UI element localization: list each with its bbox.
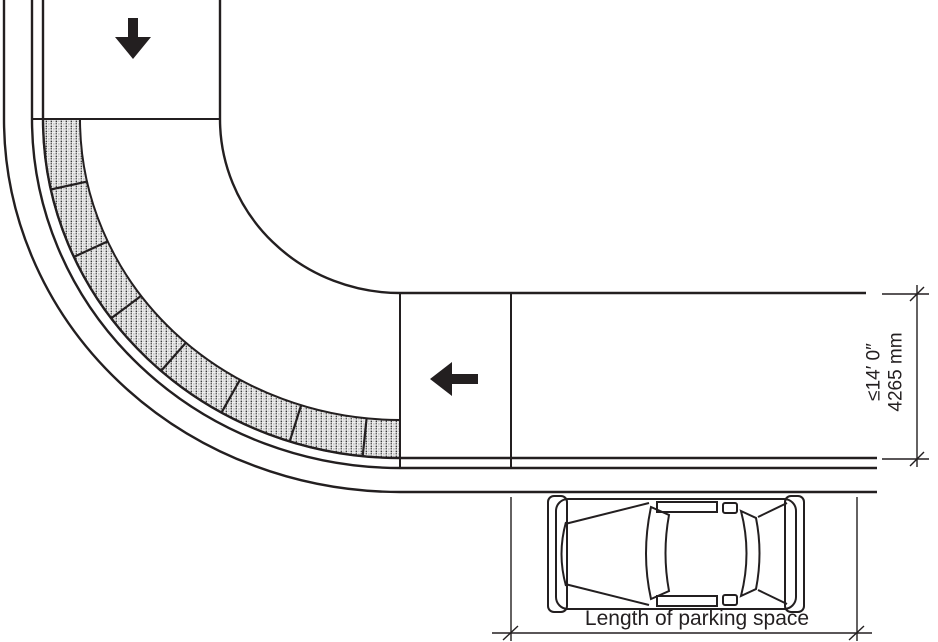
car-rear-bumper	[785, 496, 804, 612]
curb-line-outer	[32, 0, 877, 468]
diagram-canvas: Length of parking space ≤14′ 0″ 4265 mm	[0, 0, 938, 642]
car-hood-line-bottom	[565, 584, 649, 605]
car-side-window-bottom	[657, 596, 717, 606]
car-front-bumper	[548, 496, 567, 612]
roadway-width-metric-label: 4265 mm	[886, 332, 907, 411]
down-arrow-icon	[115, 18, 151, 59]
parking-space-length-label: Length of parking space	[585, 607, 809, 630]
car-top-view	[548, 496, 804, 612]
car-mirror-bottom	[723, 595, 737, 605]
outer-road-edge	[4, 0, 877, 492]
car-windshield	[646, 507, 669, 599]
street-corner-parking-diagram: Length of parking space ≤14′ 0″ 4265 mm	[0, 0, 938, 642]
roadway-width-dimension: ≤14′ 0″ 4265 mm	[864, 285, 930, 467]
car-mirror-top	[723, 503, 737, 513]
car-hood-line-top	[565, 503, 649, 524]
left-arrow-icon	[430, 362, 478, 396]
car-front-grille	[562, 522, 567, 586]
car-trunk-line-bottom	[758, 590, 787, 604]
inner-corner-edge	[220, 0, 866, 293]
car-rear-window	[741, 511, 760, 596]
textured-curb-band	[43, 119, 400, 458]
car-trunk-line-top	[758, 503, 787, 517]
roadway-width-imperial-label: ≤14′ 0″	[864, 343, 885, 401]
car-side-window-top	[657, 502, 717, 512]
